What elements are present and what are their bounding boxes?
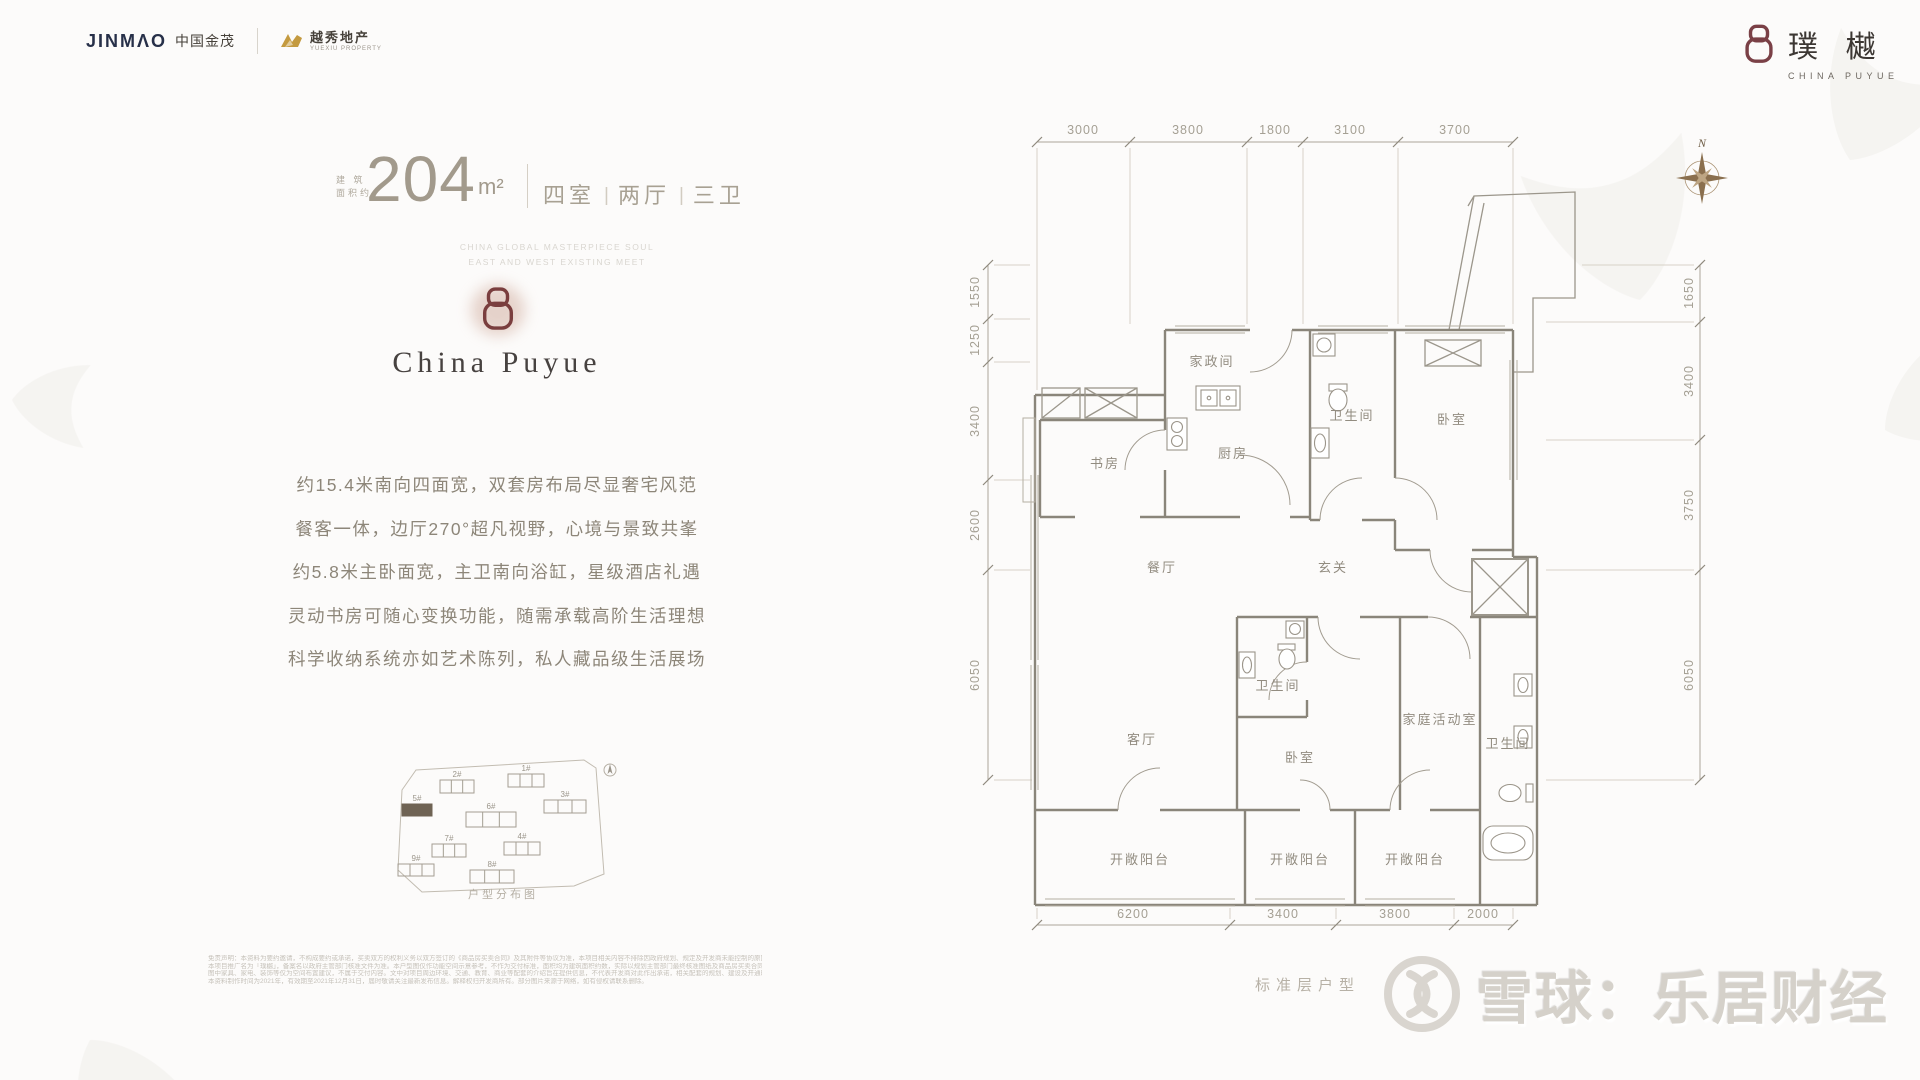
dim-label-left: 3400 bbox=[968, 405, 982, 437]
emblem-name: China Puyue bbox=[347, 346, 647, 380]
page: JINMΛO 中国金茂 越秀地产 YUEXIU PROPERTY 璞 樾 CHI… bbox=[0, 0, 1920, 1080]
site-building-label: 9# bbox=[412, 854, 421, 863]
copy-line: 科学收纳系统亦如艺术陈列，私人藏品级生活展场 bbox=[287, 638, 707, 682]
tagline-line2: EAST AND WEST EXISTING MEET bbox=[427, 255, 687, 270]
site-building bbox=[508, 774, 544, 787]
shaft-and-closet-boxes bbox=[1042, 340, 1528, 615]
yuexiu-cn-label: 越秀地产 bbox=[310, 31, 382, 44]
room-count-segment: 两厅 bbox=[618, 183, 670, 208]
room-count-separator: | bbox=[679, 185, 684, 206]
room-label: 卫生间 bbox=[1255, 678, 1300, 693]
puyue-knot-icon bbox=[1742, 22, 1776, 68]
dim-label-top: 3100 bbox=[1334, 123, 1366, 137]
floor-plan: 家政间厨房书房卫生间卧室餐厅玄关客厅卫生间卧室家庭活动室卫生间开敞阳台开敞阳台开… bbox=[940, 95, 1740, 975]
site-building bbox=[504, 842, 540, 855]
site-building-detail bbox=[558, 800, 572, 813]
dim-label-left: 2600 bbox=[968, 509, 982, 541]
room-label: 玄关 bbox=[1318, 560, 1348, 575]
dim-label-right: 6050 bbox=[1682, 659, 1696, 691]
site-building-label: 3# bbox=[561, 790, 570, 799]
site-boundary bbox=[398, 760, 604, 892]
room-count-segment: 三卫 bbox=[693, 183, 745, 208]
marketing-copy: 约15.4米南向四面宽，双套房布局尽显奢宅风范餐客一体，边厅270°超凡视野，心… bbox=[287, 464, 707, 682]
room-label: 卫生间 bbox=[1329, 408, 1374, 423]
dim-label-bottom: 3400 bbox=[1267, 907, 1299, 921]
site-compass-icon bbox=[604, 764, 616, 776]
dim-label-top: 1800 bbox=[1259, 123, 1291, 137]
emblem-knot-icon bbox=[479, 286, 517, 334]
room-label: 餐厅 bbox=[1147, 560, 1177, 575]
site-building-label: 4# bbox=[518, 832, 527, 841]
dim-label-right: 3750 bbox=[1682, 489, 1696, 521]
jinmao-logo: JINMΛO bbox=[86, 31, 167, 52]
dim-label-right: 1650 bbox=[1682, 277, 1696, 309]
disclaimer: 免责声明：本资料为要约邀请，不构成要约或承诺，买卖双方的权利义务以双方签订的《商… bbox=[208, 955, 762, 986]
site-building-label: 7# bbox=[445, 834, 454, 843]
room-label: 客厅 bbox=[1127, 732, 1157, 747]
site-building bbox=[466, 812, 516, 827]
english-tagline: CHINA GLOBAL MASTERPIECE SOUL EAST AND W… bbox=[427, 240, 687, 270]
room-label: 开敞阳台 bbox=[1270, 852, 1330, 867]
watermark: 雪球：乐居财经 bbox=[1380, 952, 1889, 1036]
site-building bbox=[432, 844, 466, 857]
dim-label-top: 3800 bbox=[1172, 123, 1204, 137]
dim-label-left: 6050 bbox=[968, 659, 982, 691]
disclaimer-line: 免责声明：本资料为要约邀请，不构成要约或承诺，买卖双方的权利义务以双方签订的《商… bbox=[208, 955, 762, 963]
site-building-label: 2# bbox=[453, 770, 462, 779]
compass-icon: N bbox=[1676, 136, 1728, 204]
disclaimer-line: 本项目推广名为「璞樾」，备案名以政府主管部门核准文件为准。本户型图仅作功能空间示… bbox=[208, 963, 762, 971]
dim-label-bottom: 6200 bbox=[1117, 907, 1149, 921]
area-unit: m² bbox=[478, 174, 504, 200]
room-label: 家庭活动室 bbox=[1402, 712, 1477, 727]
site-building bbox=[398, 864, 434, 876]
room-count-line: 四室|两厅|三卫 bbox=[543, 178, 745, 210]
site-building bbox=[402, 804, 432, 816]
copy-line: 餐客一体，边厅270°超凡视野，心境与景致共峯 bbox=[287, 508, 707, 552]
room-label: 家政间 bbox=[1189, 354, 1234, 369]
yuexiu-mark-icon bbox=[280, 32, 304, 50]
site-building bbox=[470, 870, 514, 883]
dim-label-bottom: 2000 bbox=[1467, 907, 1499, 921]
dim-label-top: 3700 bbox=[1439, 123, 1471, 137]
site-building-detail bbox=[516, 842, 528, 855]
disclaimer-line: 本资料制作时间为2021年，有效期至2021年12月31日，届时敬请关注最新发布… bbox=[208, 978, 762, 986]
site-building-detail bbox=[451, 780, 462, 793]
yuexiu-en-label: YUEXIU PROPERTY bbox=[310, 46, 382, 52]
jinmao-cn-label: 中国金茂 bbox=[175, 31, 235, 51]
tagline-line1: CHINA GLOBAL MASTERPIECE SOUL bbox=[427, 240, 687, 255]
site-plan-caption: 户型分布图 bbox=[438, 886, 568, 902]
room-label: 卧室 bbox=[1437, 412, 1467, 427]
site-building-detail bbox=[443, 844, 454, 857]
dim-label-left: 1250 bbox=[968, 324, 982, 356]
plan-labels: 家政间厨房书房卫生间卧室餐厅玄关客厅卫生间卧室家庭活动室卫生间开敞阳台开敞阳台开… bbox=[968, 123, 1696, 921]
room-label: 厨房 bbox=[1218, 446, 1248, 461]
room-label: 卫生间 bbox=[1485, 736, 1530, 751]
xueqiu-logo-icon bbox=[1380, 952, 1464, 1036]
room-count-separator: | bbox=[604, 185, 609, 206]
watermark-text: 雪球：乐居财经 bbox=[1476, 953, 1889, 1035]
copy-line: 约5.8米主卧面宽，主卫南向浴缸，星级酒店礼遇 bbox=[287, 551, 707, 595]
header-brands: JINMΛO 中国金茂 越秀地产 YUEXIU PROPERTY bbox=[86, 28, 382, 54]
site-building bbox=[544, 800, 586, 813]
dim-label-top: 3000 bbox=[1067, 123, 1099, 137]
toilet-icon bbox=[1526, 784, 1533, 802]
dim-label-right: 3400 bbox=[1682, 365, 1696, 397]
puyue-logo: 璞 樾 CHINA PUYUE bbox=[1742, 22, 1899, 81]
svg-text:N: N bbox=[1697, 136, 1707, 150]
copy-line: 灵动书房可随心变换功能，随需承载高阶生活理想 bbox=[287, 595, 707, 639]
area-divider bbox=[527, 164, 528, 208]
site-building-label: 1# bbox=[522, 764, 531, 773]
dim-label-bottom: 3800 bbox=[1379, 907, 1411, 921]
disclaimer-line: 图中家具、家电、装饰等仅为空间布置建议，不属于交付内容。文中对项目周边环境、交通… bbox=[208, 970, 762, 978]
site-building-detail bbox=[485, 870, 500, 883]
dim-label-left: 1550 bbox=[968, 276, 982, 308]
dim-extension-lines bbox=[994, 148, 1694, 919]
header-divider bbox=[257, 28, 258, 54]
site-plan: 2#1#3#5#6#7#4#9#8# bbox=[388, 754, 624, 904]
site-building-label: 8# bbox=[488, 860, 497, 869]
site-building-label: 6# bbox=[487, 802, 496, 811]
puyue-cn-label: 璞 樾 bbox=[1788, 31, 1886, 64]
area-value: 204 bbox=[366, 142, 476, 216]
room-label: 书房 bbox=[1090, 456, 1120, 471]
puyue-en-label: CHINA PUYUE bbox=[1788, 71, 1899, 81]
yuexiu-logo: 越秀地产 YUEXIU PROPERTY bbox=[280, 31, 382, 52]
room-label: 开敞阳台 bbox=[1385, 852, 1445, 867]
floor-plan-caption: 标准层户型 bbox=[1255, 974, 1360, 995]
site-building-detail bbox=[483, 812, 500, 827]
site-building-label: 5# bbox=[413, 794, 422, 803]
site-building bbox=[440, 780, 474, 793]
site-building-detail bbox=[410, 864, 422, 876]
room-count-segment: 四室 bbox=[543, 183, 595, 208]
copy-line: 约15.4米南向四面宽，双套房布局尽显奢宅风范 bbox=[287, 464, 707, 508]
room-label: 开敞阳台 bbox=[1110, 852, 1170, 867]
room-label: 卧室 bbox=[1285, 750, 1315, 765]
site-building-detail bbox=[520, 774, 532, 787]
